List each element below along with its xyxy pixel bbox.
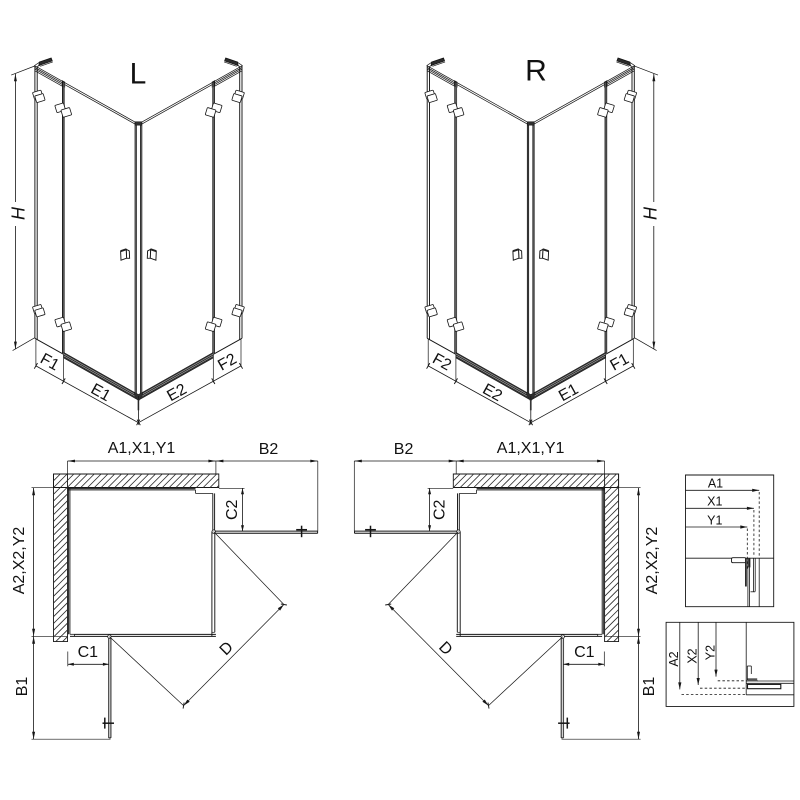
svg-text:H: H <box>641 206 661 220</box>
svg-text:A2,X2,Y2: A2,X2,Y2 <box>11 527 28 595</box>
svg-text:L: L <box>130 58 147 91</box>
svg-text:A1,X1,Y1: A1,X1,Y1 <box>497 440 565 457</box>
svg-text:R: R <box>525 55 547 88</box>
svg-text:C1: C1 <box>574 644 595 661</box>
svg-text:A2: A2 <box>667 651 681 666</box>
svg-text:X1: X1 <box>707 495 722 509</box>
svg-text:A1: A1 <box>708 477 723 491</box>
svg-text:A2,X2,Y2: A2,X2,Y2 <box>644 527 661 595</box>
svg-text:B1: B1 <box>641 677 658 697</box>
svg-text:B2: B2 <box>394 441 414 458</box>
svg-text:C1: C1 <box>78 644 99 661</box>
svg-text:B1: B1 <box>14 677 31 697</box>
svg-text:C2: C2 <box>431 499 448 520</box>
svg-text:H: H <box>9 206 29 220</box>
svg-text:B2: B2 <box>259 441 279 458</box>
svg-text:Y1: Y1 <box>707 513 722 527</box>
svg-text:A1,X1,Y1: A1,X1,Y1 <box>108 440 176 457</box>
svg-text:X2: X2 <box>685 648 699 663</box>
svg-text:C2: C2 <box>224 499 241 520</box>
svg-text:Y2: Y2 <box>704 645 718 660</box>
